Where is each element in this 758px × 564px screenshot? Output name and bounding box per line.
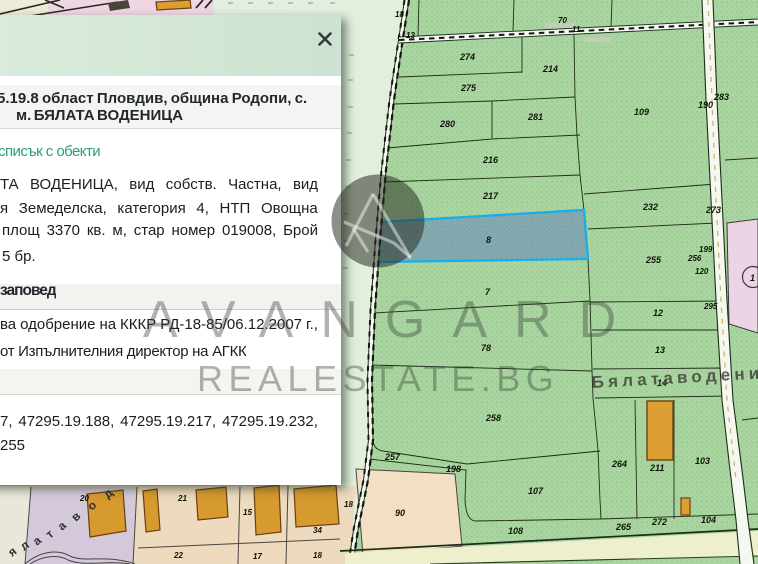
svg-text:232: 232	[642, 202, 658, 212]
svg-text:21: 21	[177, 494, 187, 503]
svg-text:108: 108	[508, 526, 523, 536]
svg-text:12: 12	[653, 308, 663, 318]
svg-text:18: 18	[313, 551, 322, 560]
svg-text:8: 8	[486, 235, 491, 245]
svg-text:216: 216	[482, 155, 499, 165]
svg-text:258: 258	[485, 413, 501, 423]
svg-text:217: 217	[482, 191, 499, 201]
svg-text:104: 104	[701, 515, 716, 525]
svg-text:11: 11	[572, 25, 581, 34]
svg-text:20: 20	[79, 494, 89, 503]
svg-text:255: 255	[645, 255, 662, 265]
svg-text:264: 264	[611, 459, 627, 469]
svg-text:265: 265	[615, 522, 632, 532]
svg-text:275: 275	[460, 83, 477, 93]
svg-text:70: 70	[558, 16, 567, 25]
svg-text:198: 198	[446, 464, 461, 474]
svg-text:103: 103	[695, 456, 710, 466]
svg-text:280: 280	[439, 119, 455, 129]
svg-text:22: 22	[173, 551, 183, 560]
svg-text:283: 283	[713, 92, 729, 102]
svg-text:107: 107	[528, 486, 544, 496]
svg-text:109: 109	[634, 107, 649, 117]
svg-text:199: 199	[699, 245, 713, 254]
svg-text:211: 211	[649, 463, 664, 473]
svg-text:256: 256	[687, 254, 702, 263]
svg-text:214: 214	[542, 64, 558, 74]
svg-text:78: 78	[481, 343, 491, 353]
svg-text:272: 272	[651, 517, 667, 527]
svg-text:90: 90	[395, 508, 405, 518]
svg-text:295: 295	[703, 302, 718, 311]
svg-text:18: 18	[344, 500, 353, 509]
svg-text:120: 120	[695, 267, 709, 276]
svg-text:190: 190	[698, 100, 713, 110]
svg-text:13: 13	[406, 31, 415, 40]
svg-text:274: 274	[459, 52, 475, 62]
svg-text:15: 15	[243, 508, 252, 517]
svg-text:281: 281	[527, 112, 543, 122]
svg-text:17: 17	[253, 552, 262, 561]
svg-text:18: 18	[395, 10, 404, 19]
svg-text:34: 34	[313, 526, 322, 535]
svg-text:13: 13	[655, 345, 665, 355]
svg-text:273: 273	[705, 205, 721, 215]
svg-text:257: 257	[384, 452, 401, 462]
svg-text:1: 1	[750, 273, 755, 283]
